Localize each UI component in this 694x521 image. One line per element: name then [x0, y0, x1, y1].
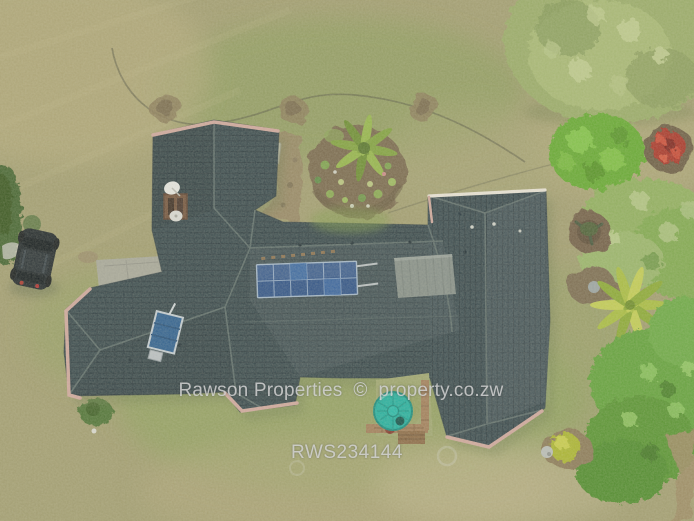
grain-overlay-light [0, 0, 694, 521]
photo-canvas [0, 0, 694, 521]
aerial-photo: Rawson Properties © property.co.zw RWS23… [0, 0, 694, 521]
